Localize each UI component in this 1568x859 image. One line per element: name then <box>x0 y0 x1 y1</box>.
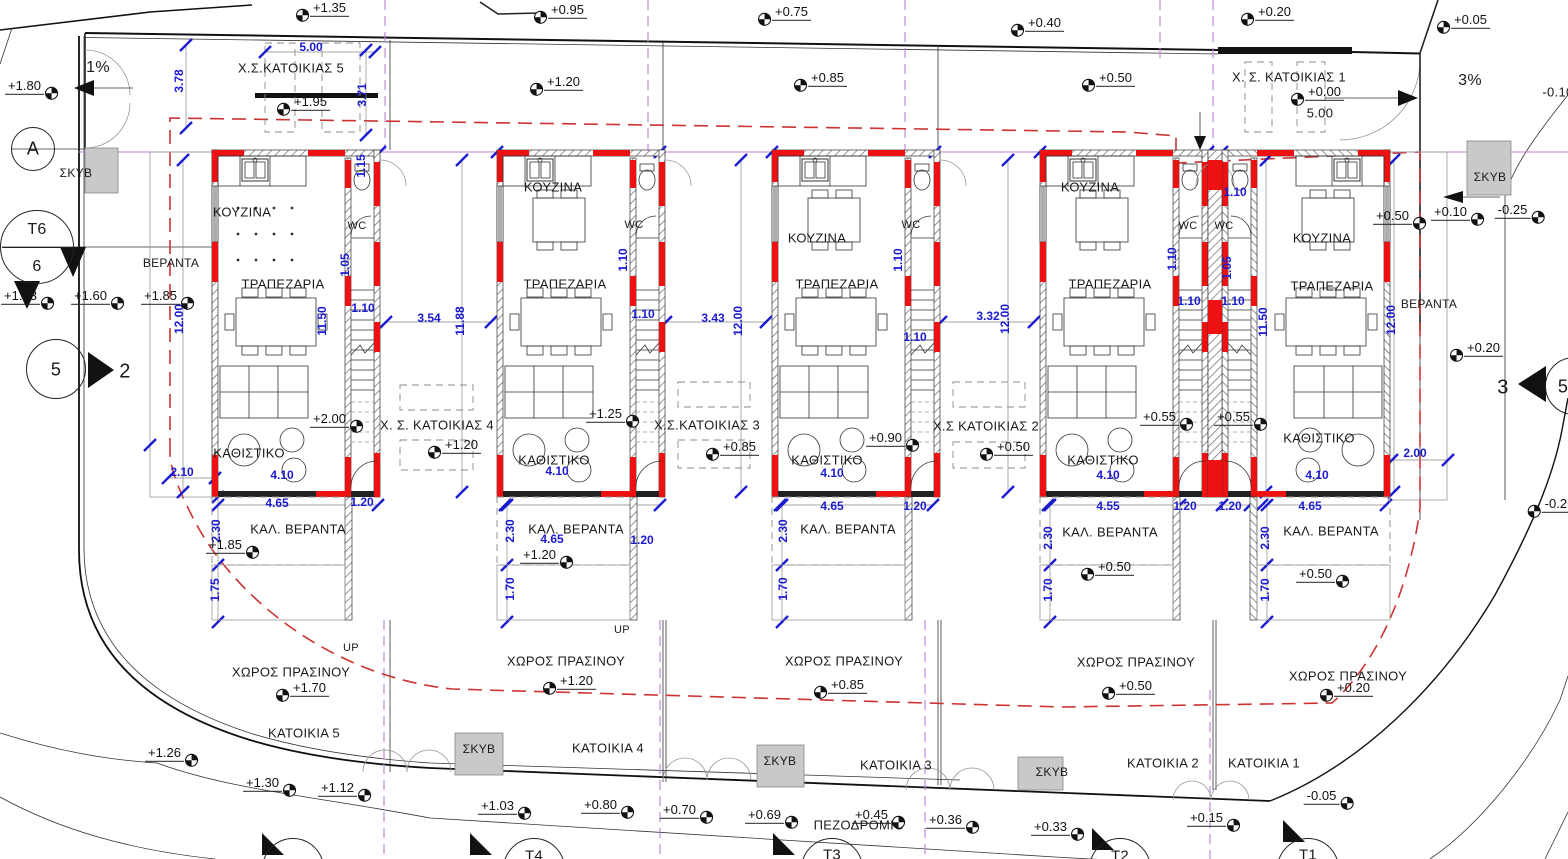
level-parking5: +1.95 <box>276 94 330 111</box>
spot-elevation-value: +0.50 <box>1116 678 1155 695</box>
room-dining-house1: ΤΡΑΠΕΖΑΡΙΑ <box>1291 279 1374 294</box>
level-veranda-h2: +0.50 <box>1080 559 1134 576</box>
spot-elevation-icon <box>349 419 364 434</box>
t6-circle-divider <box>2 247 72 248</box>
level-green-h3: +0.85 <box>813 677 867 694</box>
spot-elevation-icon <box>891 815 906 830</box>
level-entry-h1: +0.55 <box>1214 409 1268 426</box>
dim-1-75-h5: 1.75 <box>208 578 222 601</box>
dim-1-10-h5: 1.10 <box>351 301 374 315</box>
level-sw-2: +1.30 <box>243 775 297 792</box>
spot-elevation-value: +0.15 <box>1187 810 1226 827</box>
spot-elevation-value: +1.20 <box>520 547 559 564</box>
spot-elevation-icon <box>542 681 557 696</box>
dim-4-10-h1: 4.10 <box>1305 468 1328 482</box>
area-veranda-left: ΒΕΡΑΝΤΑ <box>143 256 199 270</box>
spot-elevation-icon <box>282 783 297 798</box>
room-kitchen-house3: ΚΟΥΖΙΝΑ <box>788 231 846 246</box>
area-green-house3: ΧΩΡΟΣ ΠΡΑΣΙΝΟΥ <box>785 654 903 669</box>
dim-2-30-h2: 2.30 <box>1041 526 1055 549</box>
spot-elevation-icon <box>1412 216 1427 231</box>
dim-3-54: 3.54 <box>417 311 440 325</box>
area-parking-house2: Χ.Σ ΚΑΤΟΙΚΙΑΣ 2 <box>933 419 1039 434</box>
house-unit <box>772 150 966 620</box>
room-dining-house4: ΤΡΑΠΕΖΑΡΙΑ <box>524 277 607 292</box>
spot-elevation-icon <box>1101 686 1116 701</box>
area-cov-veranda-house1: ΚΑΛ. ΒΕΡΑΝΤΑ <box>1283 524 1379 539</box>
level-sw-5: +0.80 <box>581 797 635 814</box>
spot-elevation-value: +1.80 <box>5 78 44 95</box>
spot-elevation-icon <box>705 447 720 462</box>
spot-elevation-icon <box>275 688 290 703</box>
spot-elevation-icon <box>1080 567 1095 582</box>
section-arrow-3: 3 <box>1497 377 1508 400</box>
spot-elevation-value: +0.20 <box>1334 680 1373 697</box>
spot-elevation-icon <box>1226 818 1241 833</box>
level-parking1: +0.00 <box>1290 84 1344 101</box>
level-east-2: +0.10 <box>1431 204 1485 221</box>
dim-1-10-h1b: 1.10 <box>1223 185 1246 199</box>
spot-elevation-value: +0.20 <box>1255 4 1294 21</box>
spot-elevation-icon <box>1010 23 1025 38</box>
spot-elevation-icon <box>1530 210 1545 225</box>
floor-plan-canvas: ΚΟΥΖΙΝΑΚΟΥΖΙΝΑΚΟΥΖΙΝΑΚΟΥΖΙΝΑΚΟΥΖΙΝΑΤΡΑΠΕ… <box>0 0 1568 859</box>
spot-elevation-value: +0.33 <box>1031 819 1070 836</box>
level-sw-1: +1.26 <box>145 745 199 762</box>
room-kitchen-house4: ΚΟΥΖΙΝΑ <box>524 180 582 195</box>
spot-elevation-value: +0.36 <box>926 812 965 829</box>
survey-t3-label: T3 <box>823 847 841 859</box>
level-entry-h5: +2.00 <box>310 411 364 428</box>
spot-elevation-value: +1.12 <box>318 780 357 797</box>
spot-elevation-value: +0.55 <box>1140 409 1179 426</box>
spot-elevation-icon <box>1335 574 1350 589</box>
level-green-h2: +0.50 <box>1101 678 1155 695</box>
level-east-5: -0.25 <box>1527 496 1568 513</box>
spot-elevation-value: +0.50 <box>1095 559 1134 576</box>
spot-elevation-value: +1.35 <box>310 0 349 17</box>
spot-elevation-icon <box>110 296 125 311</box>
spot-elevation-icon <box>1253 417 1268 432</box>
spot-elevation-icon <box>699 810 714 825</box>
dim-parking1-width: 5.00 <box>1307 106 1334 121</box>
concrete-skyv-topright: ΣΚΥΒ <box>1474 170 1507 184</box>
dim-1-10-h1a: 1.10 <box>1221 294 1244 308</box>
level-clipped-topright: -0.10 <box>1542 85 1568 100</box>
dim-2-00-right: 2.00 <box>1403 446 1426 460</box>
dim-4-10-h5: 4.10 <box>270 468 293 482</box>
spot-elevation-value: +1.20 <box>557 673 596 690</box>
area-cov-veranda-house3: ΚΑΛ. ΒΕΡΑΝΤΑ <box>800 522 896 537</box>
spot-elevation-icon <box>793 78 808 93</box>
room-kitchen-house2: ΚΟΥΖΙΝΑ <box>1061 180 1119 195</box>
dim-1-70-h2: 1.70 <box>1041 578 1055 601</box>
area-parking-house1: Χ. Σ. ΚΑΤΟΙΚΙΑΣ 1 <box>1232 70 1346 85</box>
spot-elevation-value: +0.10 <box>1431 204 1470 221</box>
spot-elevation-icon <box>1449 348 1464 363</box>
level-entry-h4: +1.25 <box>586 406 640 423</box>
dim-3-43: 3.43 <box>701 311 724 325</box>
dim-2-10: 2.10 <box>170 465 193 479</box>
dim-4-65-h1: 4.65 <box>1298 499 1321 513</box>
spot-elevation-value: +2.00 <box>310 411 349 428</box>
dim-1-15: 1.15 <box>354 154 368 177</box>
room-wc-house5: WC <box>348 220 367 232</box>
dim-1-10-h4a: 1.10 <box>616 248 630 271</box>
dim-4-65-h5: 4.65 <box>265 496 288 510</box>
room-dining-house5: ΤΡΑΠΕΖΑΡΙΑ <box>242 277 325 292</box>
spot-elevation-icon <box>427 445 442 460</box>
dim-11-88: 11.88 <box>453 306 467 335</box>
dim-4-55-h2: 4.55 <box>1096 499 1119 513</box>
spot-elevation-value: +1.85 <box>141 288 180 305</box>
dim-1-10-h4b: 1.10 <box>631 307 654 321</box>
dim-2-30-h1: 2.30 <box>1258 526 1272 549</box>
section-arrow-2: 2 <box>119 361 130 384</box>
spot-elevation-icon <box>1179 417 1194 432</box>
area-parking-house3: Χ.Σ.ΚΑΤΟΙΚΙΑΣ 3 <box>654 418 760 433</box>
spot-elevation-icon <box>1240 12 1255 27</box>
spot-elevation-value: +1.20 <box>544 74 583 91</box>
spot-elevation-value: +0.50 <box>1373 208 1412 225</box>
dim-1-10-h2b: 1.10 <box>1177 294 1200 308</box>
spot-elevation-value: +0.75 <box>772 4 811 21</box>
spot-elevation-icon <box>625 414 640 429</box>
level-sw-6: +0.70 <box>660 802 714 819</box>
spot-elevation-icon <box>559 555 574 570</box>
dim-1-70-h3: 1.70 <box>776 577 790 600</box>
spot-elevation-icon <box>517 806 532 821</box>
spot-elevation-icon <box>965 820 980 835</box>
spot-elevation-icon <box>1319 688 1334 703</box>
spot-elevation-value: -0.05 <box>1304 788 1340 805</box>
level-parking4: +1.20 <box>427 437 481 454</box>
spot-elevation-icon <box>44 86 59 101</box>
room-dining-house3: ΤΡΑΠΕΖΑΡΙΑ <box>796 277 879 292</box>
level-entry-h3: +0.90 <box>866 430 920 447</box>
level-sw-11: +0.15 <box>1187 810 1241 827</box>
spot-elevation-icon <box>245 545 260 560</box>
dim-1-20-h4: 1.20 <box>630 533 653 547</box>
spot-elevation-value: +0.55 <box>1214 409 1253 426</box>
room-kitchen-house1: ΚΟΥΖΙΝΑ <box>1293 231 1351 246</box>
spot-elevation-icon <box>905 438 920 453</box>
dim-1-20-h2: 1.20 <box>1173 499 1196 513</box>
room-wc-house4: WC <box>625 219 644 231</box>
dim-parking5-width: 5.00 <box>299 40 322 54</box>
level-sw-4: +1.03 <box>478 798 532 815</box>
dim-4-10-h2: 4.10 <box>1096 468 1119 482</box>
spot-elevation-value: +0.69 <box>745 807 784 824</box>
level-road-3: +0.75 <box>757 4 811 21</box>
lot-house3: ΚΑΤΟΙΚΙΑ 3 <box>860 758 932 773</box>
dim-1-70-h4: 1.70 <box>503 577 517 600</box>
spot-elevation-value: +1.60 <box>71 288 110 305</box>
survey-t6-label: T6 <box>27 221 46 239</box>
level-road-2: +0.95 <box>533 2 587 19</box>
level-green-h1: +0.20 <box>1319 680 1373 697</box>
level-veranda-h1: +0.50 <box>1296 566 1350 583</box>
room-kitchen-house5: ΚΟΥΖΙΝΑ <box>213 205 271 220</box>
lot-house1: ΚΑΤΟΙΚΙΑ 1 <box>1228 756 1300 771</box>
level-entry-h2: +0.55 <box>1140 409 1194 426</box>
slope-left: 1% <box>86 59 110 77</box>
spot-elevation-value: +0.40 <box>1025 15 1064 32</box>
spot-elevation-value: -0.25 <box>1495 202 1531 219</box>
level-east-4: +0.20 <box>1449 340 1503 357</box>
survey-t2-label: T2 <box>1111 848 1129 859</box>
spot-elevation-icon <box>1339 796 1354 811</box>
spot-elevation-value: +0.85 <box>828 677 867 694</box>
room-wc-house3: WC <box>902 219 921 231</box>
dim-12-00-a: 12.00 <box>731 306 745 336</box>
spot-elevation-value: +0.50 <box>1296 566 1335 583</box>
room-living-house1: ΚΑΘΙΣΤΙΚΟ <box>1283 431 1354 446</box>
spot-elevation-value: +0.85 <box>808 70 847 87</box>
stairs-up-house4: UP <box>614 624 630 636</box>
dim-1-05-h1: 1.05 <box>1220 256 1234 279</box>
spot-elevation-value: +1.20 <box>442 437 481 454</box>
dim-1-10-h2a: 1.10 <box>1165 247 1179 270</box>
area-veranda-right: ΒΕΡΑΝΤΑ <box>1401 297 1457 311</box>
dim-11-50-h1: 11.50 <box>1256 307 1270 336</box>
spot-elevation-value: +0.70 <box>660 802 699 819</box>
spot-elevation-value: +1.26 <box>145 745 184 762</box>
survey-t1-label: T1 <box>1299 847 1317 859</box>
room-wc-house1: WC <box>1215 220 1234 232</box>
level-east-1: +0.50 <box>1373 208 1427 225</box>
spot-elevation-icon <box>784 815 799 830</box>
level-west-1: +1.63 <box>1 288 55 305</box>
dim-1-70-h1: 1.70 <box>1258 578 1272 601</box>
level-green-h5: +1.70 <box>275 680 329 697</box>
spot-elevation-icon <box>295 8 310 23</box>
dim-4-10-h3: 4.10 <box>820 466 843 480</box>
level-sw-3: +1.12 <box>318 780 372 797</box>
dim-1-10-h3b: 1.10 <box>903 330 926 344</box>
section-circle-5-label: 5 <box>51 360 61 381</box>
concrete-skyv-bottom5: ΣΚΥΒ <box>463 742 496 756</box>
dim-3-32: 3.32 <box>976 309 999 323</box>
level-entry-left: +1.80 <box>5 78 59 95</box>
spot-elevation-value: +1.95 <box>291 94 330 111</box>
spot-elevation-value: -0.25 <box>1542 496 1568 513</box>
room-wc-house2: WC <box>1179 220 1198 232</box>
level-sw-9: +0.36 <box>926 812 980 829</box>
spot-elevation-icon <box>1470 212 1485 227</box>
dim-3-71: 3.71 <box>355 83 369 106</box>
area-cov-veranda-house2: ΚΑΛ. ΒΕΡΑΝΤΑ <box>1062 525 1158 540</box>
area-cov-veranda-house5: ΚΑΛ. ΒΕΡΑΝΤΑ <box>250 522 346 537</box>
spot-elevation-value: +1.25 <box>586 406 625 423</box>
level-east-3: -0.25 <box>1495 202 1546 219</box>
party-wall <box>1208 150 1222 497</box>
site-plan-drawing <box>0 0 1568 859</box>
spot-elevation-value: +0.50 <box>1096 70 1135 87</box>
dim-12-00-b: 12.00 <box>998 304 1012 334</box>
house-unit <box>1040 150 1234 620</box>
dim-4-65-h3: 4.65 <box>820 499 843 513</box>
level-road-6: +0.05 <box>1436 12 1490 29</box>
level-west-2: +1.60 <box>71 288 125 305</box>
dim-11-50-h5: 11.50 <box>315 306 329 335</box>
spot-elevation-icon <box>620 805 635 820</box>
level-front-2: +0.50 <box>1081 70 1135 87</box>
spot-elevation-icon <box>533 10 548 25</box>
level-sw-12: -0.05 <box>1304 788 1355 805</box>
spot-elevation-value: +1.03 <box>478 798 517 815</box>
spot-elevation-icon <box>276 102 291 117</box>
site-boundaries <box>0 0 1568 859</box>
area-green-house5: ΧΩΡΟΣ ΠΡΑΣΙΝΟΥ <box>232 665 350 680</box>
lot-house4: ΚΑΤΟΙΚΙΑ 4 <box>572 741 644 756</box>
dim-4-10-h4: 4.10 <box>545 464 568 478</box>
survey-t4-label: T4 <box>525 848 543 859</box>
level-veranda-h4: +1.20 <box>520 547 574 564</box>
spot-elevation-value: +0.85 <box>720 439 759 456</box>
level-road-5: +0.20 <box>1240 4 1294 21</box>
spot-elevation-value: +0.00 <box>1305 84 1344 101</box>
spot-elevation-icon <box>357 788 372 803</box>
dim-4-65-h4: 4.65 <box>540 532 563 546</box>
spot-elevation-icon <box>1290 92 1305 107</box>
spot-elevation-value: +0.95 <box>548 2 587 19</box>
area-parking-house4: Χ. Σ. ΚΑΤΟΙΚΙΑΣ 4 <box>380 418 494 433</box>
room-living-house2: ΚΑΘΙΣΤΙΚΟ <box>1067 453 1138 468</box>
level-sw-10: +0.33 <box>1031 819 1085 836</box>
dim-2-30-h4: 2.30 <box>503 519 517 542</box>
spot-elevation-value: +0.50 <box>994 439 1033 456</box>
spot-elevation-icon <box>40 296 55 311</box>
dim-1-10-h3a: 1.10 <box>891 248 905 271</box>
lot-house2: ΚΑΤΟΙΚΙΑ 2 <box>1127 756 1199 771</box>
spot-elevation-icon <box>757 12 772 27</box>
concrete-skyv-bottom3: ΣΚΥΒ <box>764 754 797 768</box>
lot-house5: ΚΑΤΟΙΚΙΑ 5 <box>268 726 340 741</box>
level-sw-8: +0.45 <box>852 807 906 824</box>
dim-3-78: 3.78 <box>172 69 186 92</box>
spot-elevation-value: +0.20 <box>1464 340 1503 357</box>
spot-elevation-value: +0.45 <box>852 807 891 824</box>
stairs-up-house5: UP <box>343 642 359 654</box>
spot-elevation-icon <box>180 296 195 311</box>
level-road-4: +0.40 <box>1010 15 1064 32</box>
spot-elevation-icon <box>1436 20 1451 35</box>
dim-1-20-h3: 1.20 <box>903 499 926 513</box>
spot-elevation-icon <box>1081 78 1096 93</box>
spot-elevation-value: +1.85 <box>206 537 245 554</box>
spot-elevation-icon <box>184 753 199 768</box>
concrete-skyv-topleft: ΣΚΥΒ <box>60 166 93 180</box>
level-west-3: +1.85 <box>141 288 195 305</box>
spot-elevation-icon <box>1070 827 1085 842</box>
spot-elevation-value: +0.80 <box>581 797 620 814</box>
room-dining-house2: ΤΡΑΠΕΖΑΡΙΑ <box>1069 277 1152 292</box>
room-living-house5: ΚΑΘΙΣΤΙΚΟ <box>213 446 284 461</box>
grid-circle-a-label: A <box>27 139 39 160</box>
dim-1-05-h5: 1.05 <box>338 253 352 276</box>
spot-elevation-value: +1.70 <box>290 680 329 697</box>
level-front-3: +0.85 <box>793 70 847 87</box>
level-sw-7: +0.69 <box>745 807 799 824</box>
spot-elevation-icon <box>529 82 544 97</box>
dim-12-00-right: 12.00 <box>1384 305 1398 335</box>
dim-1-20-h1: 1.20 <box>1218 499 1241 513</box>
slope-right: 3% <box>1458 72 1482 90</box>
spot-elevation-icon <box>813 685 828 700</box>
spot-elevation-icon <box>1527 504 1542 519</box>
spot-elevation-value: +0.90 <box>866 430 905 447</box>
concrete-skyv-bottom2: ΣΚΥΒ <box>1036 765 1069 779</box>
level-parking3: +0.85 <box>705 439 759 456</box>
section-circle-5r-label: 5 <box>1558 377 1568 398</box>
level-green-h4: +1.20 <box>542 673 596 690</box>
survey-t6-sub: 6 <box>32 258 41 276</box>
area-parking-house5: Χ.Σ.ΚΑΤΟΙΚΙΑΣ 5 <box>238 61 344 76</box>
spot-elevation-icon <box>979 447 994 462</box>
spot-elevation-value: +0.05 <box>1451 12 1490 29</box>
level-road-1: +1.35 <box>295 0 349 17</box>
level-parking2: +0.50 <box>979 439 1033 456</box>
spot-elevation-value: +1.63 <box>1 288 40 305</box>
spot-elevation-value: +1.30 <box>243 775 282 792</box>
dim-2-30-h3: 2.30 <box>776 519 790 542</box>
dim-1-20-h5: 1.20 <box>350 495 373 509</box>
area-green-house4: ΧΩΡΟΣ ΠΡΑΣΙΝΟΥ <box>507 654 625 669</box>
level-front-5: +1.20 <box>529 74 583 91</box>
area-green-house2: ΧΩΡΟΣ ΠΡΑΣΙΝΟΥ <box>1077 655 1195 670</box>
level-veranda-h5: +1.85 <box>206 537 260 554</box>
